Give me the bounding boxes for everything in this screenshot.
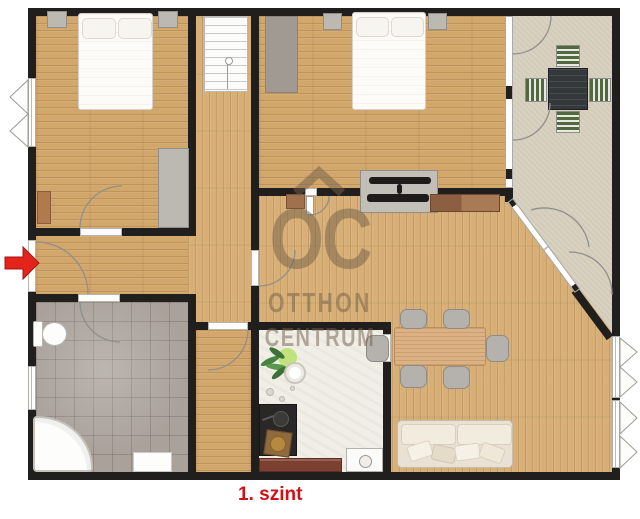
door-swing-terrace-4 (569, 252, 612, 295)
window-casement-icon (10, 114, 28, 147)
door-swing-bedroom1 (80, 186, 122, 228)
door-swing-entrance (36, 242, 88, 294)
watermark-roof-icon (296, 172, 342, 193)
window-casement-icon (620, 402, 637, 434)
window-casement-icon (620, 338, 637, 367)
floor-level-label: 1. szint (238, 484, 302, 506)
entrance-arrow-icon (5, 247, 39, 279)
watermark-line1-text: OTTHON (268, 290, 372, 317)
window-casement-icon (10, 80, 28, 114)
door-swing-bathroom (80, 302, 120, 342)
watermark-line1: OTTHON (240, 290, 400, 311)
watermark-line2: CENTRUM (240, 325, 400, 345)
watermark-line2-text: CENTRUM (265, 325, 376, 351)
window-casement-icon (620, 367, 637, 397)
door-swing-terrace-2 (513, 103, 550, 140)
watermark-logo-text: OC (270, 196, 371, 281)
door-swing-terrace-3 (531, 208, 589, 247)
watermark-logo: OC (240, 196, 400, 266)
door-swing-terrace-1 (513, 16, 551, 54)
window-casement-icon (620, 436, 637, 468)
floor-plan: OC OTTHON CENTRUM 1. szint (0, 0, 640, 519)
